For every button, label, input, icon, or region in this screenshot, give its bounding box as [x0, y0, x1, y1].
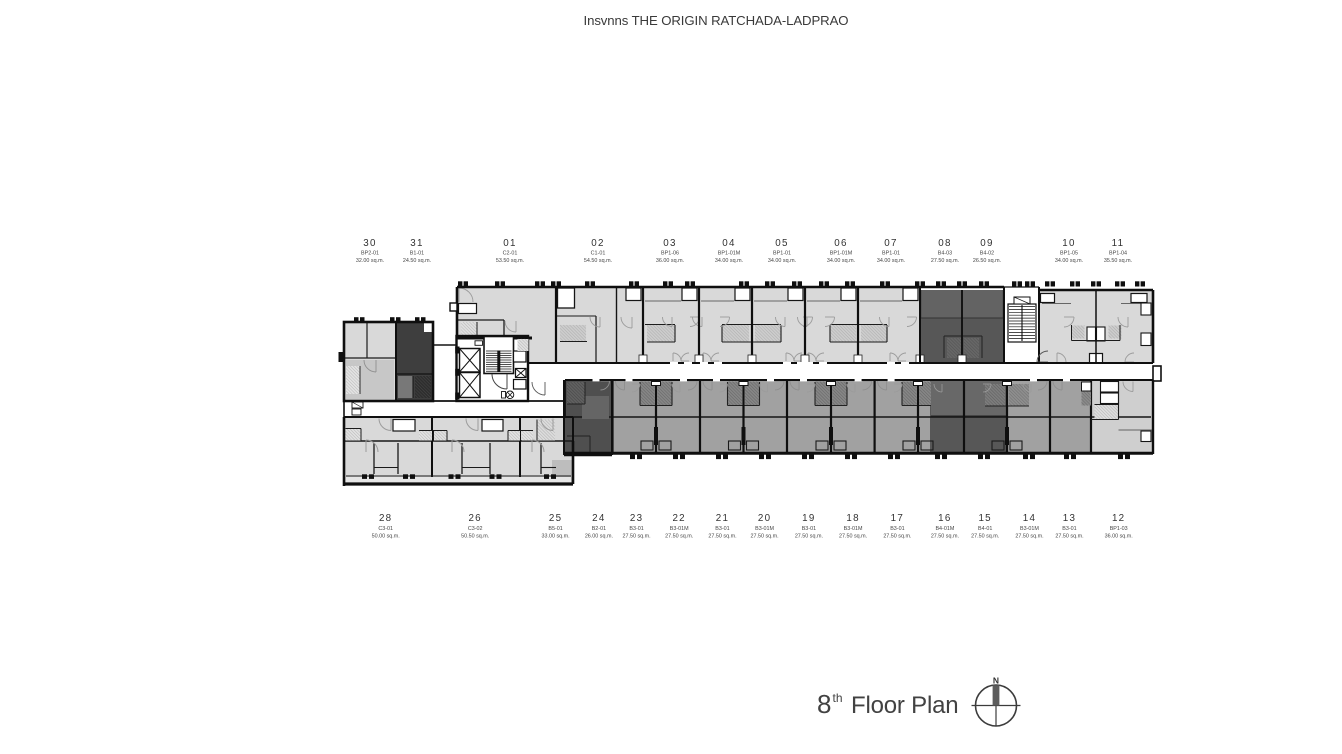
svg-text:Insvnns THE ORIGIN RATCHADA-LA: Insvnns THE ORIGIN RATCHADA-LADPRAO	[584, 13, 849, 28]
svg-text:B4-01M: B4-01M	[935, 526, 954, 532]
svg-text:BP1-01M: BP1-01M	[830, 251, 853, 257]
svg-text:08: 08	[938, 238, 952, 249]
svg-text:C1-01: C1-01	[591, 251, 606, 257]
svg-text:B3-01: B3-01	[1062, 526, 1076, 532]
svg-text:27.50 sq.m.: 27.50 sq.m.	[1055, 534, 1083, 540]
svg-text:35.50 sq.m.: 35.50 sq.m.	[1104, 258, 1132, 264]
svg-text:B3-01: B3-01	[890, 526, 904, 532]
svg-text:th: th	[833, 691, 843, 705]
svg-text:BP1-01: BP1-01	[773, 251, 791, 257]
svg-text:50.50 sq.m.: 50.50 sq.m.	[461, 534, 489, 540]
svg-text:34.00 sq.m.: 34.00 sq.m.	[715, 258, 743, 264]
svg-text:13: 13	[1063, 513, 1077, 524]
svg-text:36.00 sq.m.: 36.00 sq.m.	[656, 258, 684, 264]
svg-text:17: 17	[891, 513, 905, 524]
svg-text:14: 14	[1023, 513, 1037, 524]
svg-text:24: 24	[592, 513, 606, 524]
svg-text:B3-01M: B3-01M	[670, 526, 689, 532]
svg-text:04: 04	[722, 238, 736, 249]
svg-text:31: 31	[410, 238, 424, 249]
svg-text:B3-01: B3-01	[802, 526, 816, 532]
svg-text:53.50 sq.m.: 53.50 sq.m.	[496, 258, 524, 264]
svg-text:BP1-01M: BP1-01M	[718, 251, 741, 257]
svg-text:34.00 sq.m.: 34.00 sq.m.	[827, 258, 855, 264]
svg-text:20: 20	[758, 513, 772, 524]
svg-text:B5-01: B5-01	[548, 526, 562, 532]
svg-text:27.50 sq.m.: 27.50 sq.m.	[1015, 534, 1043, 540]
svg-text:B4-02: B4-02	[980, 251, 994, 257]
svg-text:24.50 sq.m.: 24.50 sq.m.	[403, 258, 431, 264]
svg-text:32.00 sq.m.: 32.00 sq.m.	[356, 258, 384, 264]
svg-text:Floor Plan: Floor Plan	[851, 692, 958, 719]
svg-text:07: 07	[884, 238, 898, 249]
svg-text:23: 23	[630, 513, 644, 524]
svg-text:27.50 sq.m.: 27.50 sq.m.	[883, 534, 911, 540]
svg-text:28: 28	[379, 513, 393, 524]
svg-text:27.50 sq.m.: 27.50 sq.m.	[839, 534, 867, 540]
svg-text:18: 18	[846, 513, 860, 524]
svg-text:B3-01M: B3-01M	[755, 526, 774, 532]
svg-text:B4-03: B4-03	[938, 251, 952, 257]
svg-text:05: 05	[775, 238, 789, 249]
svg-text:50.00 sq.m.: 50.00 sq.m.	[372, 534, 400, 540]
svg-text:BP1-06: BP1-06	[661, 251, 679, 257]
svg-text:15: 15	[978, 513, 992, 524]
svg-text:34.00 sq.m.: 34.00 sq.m.	[768, 258, 796, 264]
svg-text:26.50 sq.m.: 26.50 sq.m.	[973, 258, 1001, 264]
svg-text:25: 25	[549, 513, 563, 524]
svg-text:09: 09	[980, 238, 994, 249]
svg-text:34.00 sq.m.: 34.00 sq.m.	[1055, 258, 1083, 264]
svg-text:B4-01: B4-01	[978, 526, 992, 532]
svg-text:B3-01: B3-01	[629, 526, 643, 532]
svg-text:26: 26	[468, 513, 482, 524]
svg-text:BP1-03: BP1-03	[1110, 526, 1128, 532]
svg-text:BP2-01: BP2-01	[361, 251, 379, 257]
svg-text:33.00 sq.m.: 33.00 sq.m.	[542, 534, 570, 540]
svg-text:54.50 sq.m.: 54.50 sq.m.	[584, 258, 612, 264]
svg-text:27.50 sq.m.: 27.50 sq.m.	[665, 534, 693, 540]
svg-text:36.00 sq.m.: 36.00 sq.m.	[1105, 534, 1133, 540]
svg-text:N: N	[993, 676, 999, 686]
svg-text:26.00 sq.m.: 26.00 sq.m.	[585, 534, 613, 540]
svg-text:B3-01: B3-01	[715, 526, 729, 532]
svg-text:02: 02	[591, 238, 605, 249]
svg-text:16: 16	[938, 513, 952, 524]
svg-text:B3-01M: B3-01M	[844, 526, 863, 532]
svg-text:06: 06	[834, 238, 848, 249]
svg-text:27.50 sq.m.: 27.50 sq.m.	[623, 534, 651, 540]
svg-text:B1-01: B1-01	[410, 251, 424, 257]
svg-text:19: 19	[802, 513, 816, 524]
svg-text:27.50 sq.m.: 27.50 sq.m.	[751, 534, 779, 540]
svg-text:01: 01	[503, 238, 517, 249]
svg-text:C3-01: C3-01	[378, 526, 393, 532]
svg-text:27.50 sq.m.: 27.50 sq.m.	[971, 534, 999, 540]
svg-text:27.50 sq.m.: 27.50 sq.m.	[931, 258, 959, 264]
svg-text:03: 03	[663, 238, 677, 249]
svg-text:21: 21	[716, 513, 730, 524]
svg-text:B2-01: B2-01	[592, 526, 606, 532]
svg-text:C2-01: C2-01	[503, 251, 518, 257]
svg-text:27.50 sq.m.: 27.50 sq.m.	[708, 534, 736, 540]
svg-text:BP1-01: BP1-01	[882, 251, 900, 257]
svg-text:27.50 sq.m.: 27.50 sq.m.	[795, 534, 823, 540]
svg-text:30: 30	[363, 238, 377, 249]
svg-text:BP1-05: BP1-05	[1060, 251, 1078, 257]
svg-text:12: 12	[1112, 513, 1126, 524]
svg-text:BP1-04: BP1-04	[1109, 251, 1127, 257]
svg-text:27.50 sq.m.: 27.50 sq.m.	[931, 534, 959, 540]
svg-text:34.00 sq.m.: 34.00 sq.m.	[877, 258, 905, 264]
svg-text:8: 8	[817, 689, 831, 719]
svg-text:22: 22	[672, 513, 686, 524]
svg-text:11: 11	[1112, 238, 1125, 249]
svg-text:C3-02: C3-02	[468, 526, 483, 532]
svg-text:10: 10	[1062, 238, 1076, 249]
svg-text:B3-01M: B3-01M	[1020, 526, 1039, 532]
